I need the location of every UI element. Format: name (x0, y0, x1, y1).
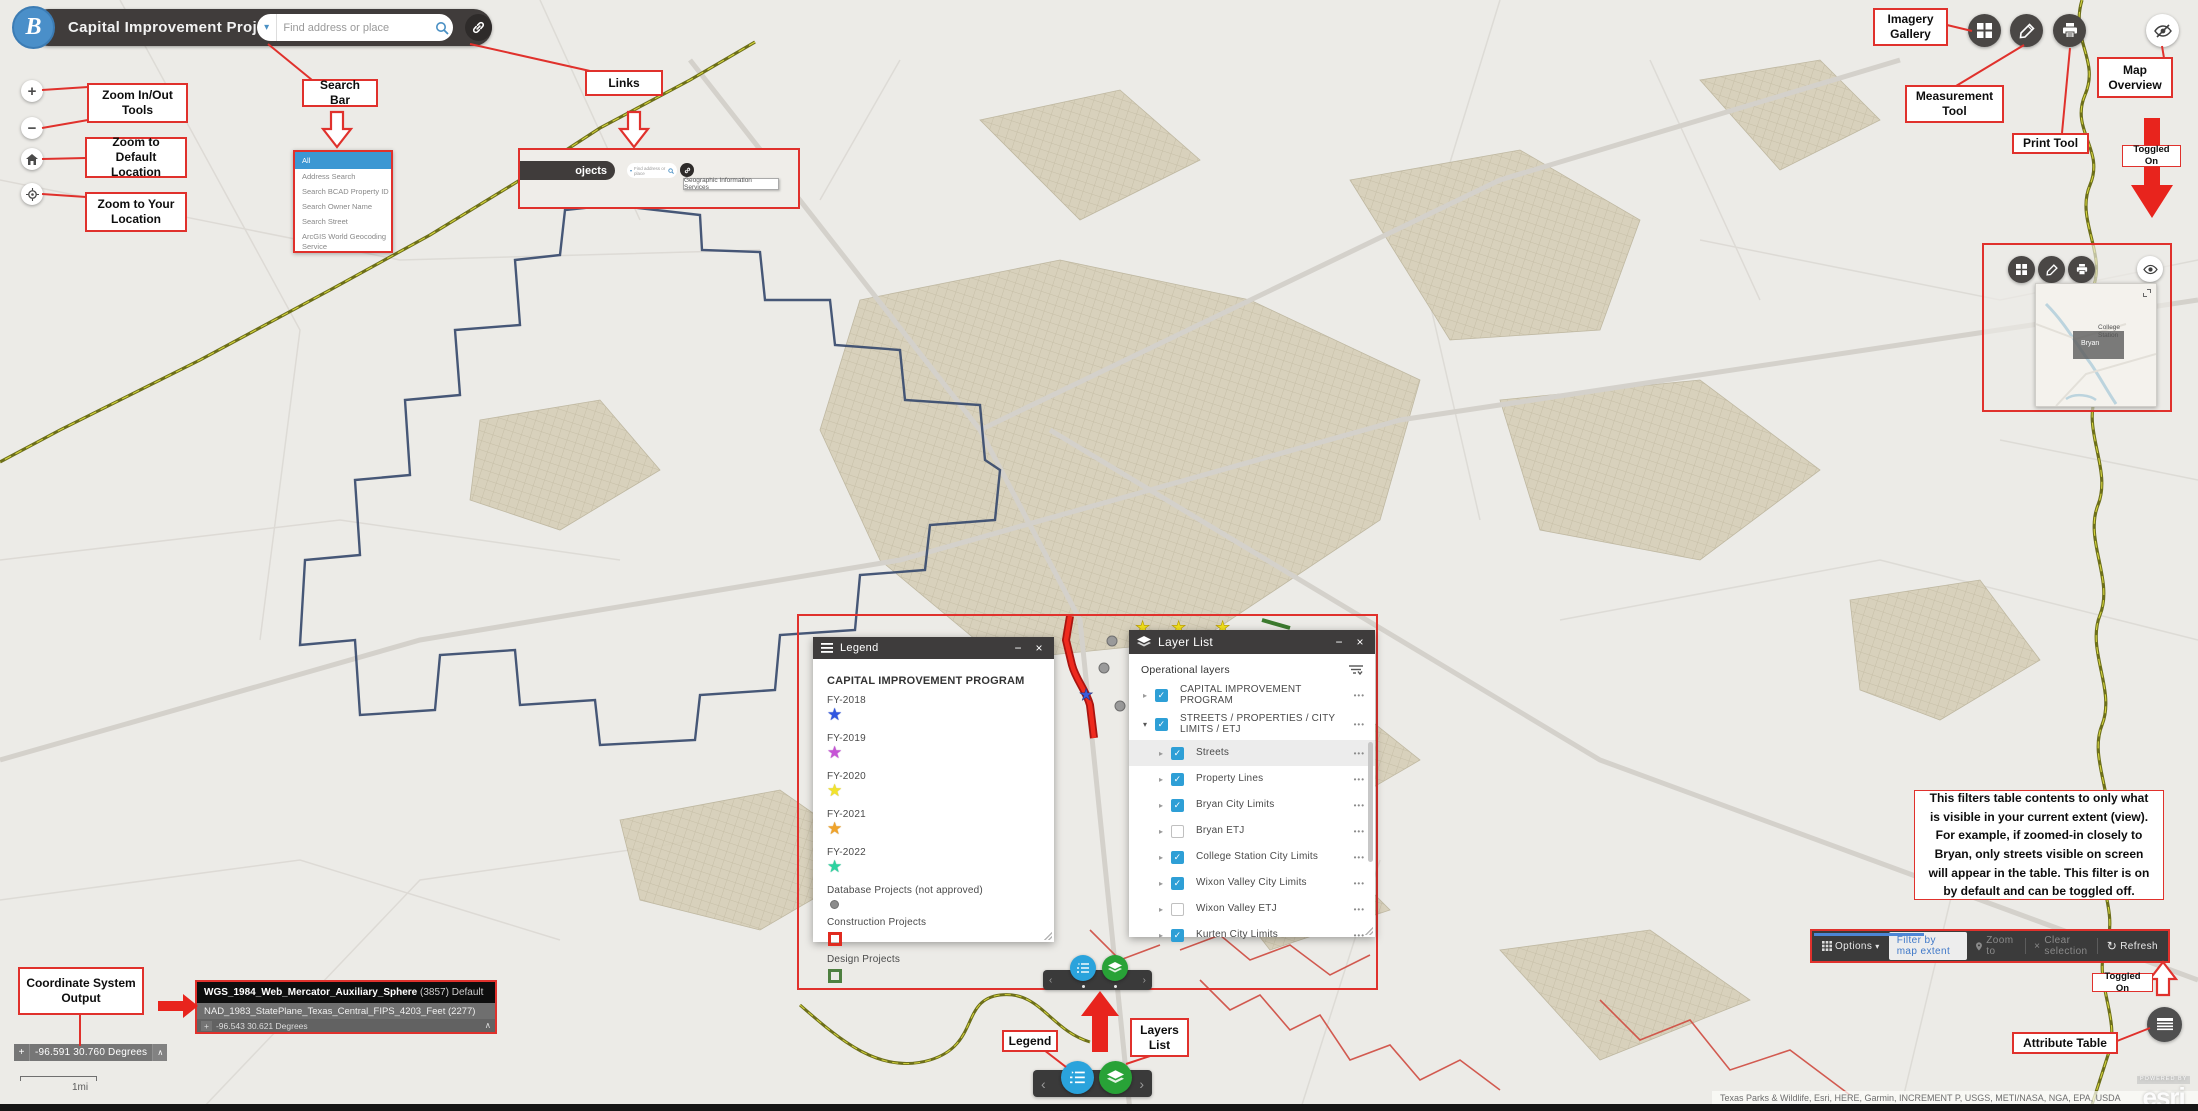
grid-icon (1977, 23, 1992, 38)
layer-list-widget-button[interactable] (1099, 1061, 1132, 1094)
prev-icon[interactable]: ‹ (1041, 1076, 1046, 1092)
crosshair-icon[interactable]: + (14, 1044, 30, 1061)
layer-label: CAPITAL IMPROVEMENT PROGRAM (1180, 684, 1354, 707)
callout-links: Links (585, 70, 663, 96)
overview-eye-button-mini (2137, 256, 2163, 282)
layer-list-resize-handle[interactable] (1365, 927, 1373, 935)
checkbox-unchecked[interactable] (1171, 903, 1184, 916)
dropdown-item-street[interactable]: Search Street (295, 214, 391, 229)
layer-options-icon[interactable] (1349, 665, 1363, 675)
legend-widget-button[interactable] (1061, 1061, 1094, 1094)
legend-close-button[interactable]: × (1032, 641, 1046, 655)
measurement-button-mini (2038, 256, 2065, 283)
scale-bar (20, 1076, 97, 1081)
links-inset: ojects ▾ Find address or place Geographi… (518, 148, 800, 209)
layer-menu-icon[interactable]: ••• (1354, 720, 1365, 729)
layer-row-property-lines[interactable]: ▸ ✓ Property Lines ••• (1129, 766, 1375, 792)
legend-item-label: Construction Projects (827, 917, 1054, 928)
layer-row-wixon-valley-etj[interactable]: ▸ Wixon Valley ETJ ••• (1129, 896, 1375, 922)
overview-label-college-station: College Station (2098, 324, 2128, 340)
expand-icon[interactable]: ▸ (1159, 879, 1171, 888)
callout-coordinate-system: Coordinate System Output (18, 967, 144, 1015)
coordinate-widget: + -96.591 30.760 Degrees ∧ (14, 1044, 167, 1061)
layer-menu-icon[interactable]: ••• (1354, 827, 1365, 836)
layer-label: Streets (1196, 747, 1354, 759)
layer-label: Property Lines (1196, 773, 1354, 785)
operational-layers-header: Operational layers (1129, 654, 1375, 682)
clear-selection-button[interactable]: × Clear selection (2034, 935, 2088, 957)
layer-label: Bryan ETJ (1196, 825, 1354, 837)
layers-icon (1137, 636, 1151, 648)
coordinate-system-row-default[interactable]: WGS_1984_Web_Mercator_Auxiliary_Sphere (… (197, 982, 495, 1003)
callout-search-bar: Search Bar (302, 79, 378, 107)
legend-widget-button-mini (1070, 955, 1096, 981)
checkbox-checked[interactable]: ✓ (1155, 689, 1168, 702)
clear-selection-label: Clear selection (2044, 935, 2088, 957)
app-header: B Capital Improvement Projects ▾ (30, 9, 492, 46)
minus-icon: − (28, 120, 37, 137)
map-attribution: Texas Parks & Wildlife, Esri, HERE, Garm… (1712, 1091, 2198, 1105)
checkbox-checked[interactable]: ✓ (1171, 877, 1184, 890)
caret-down-icon: ▾ (264, 22, 269, 33)
legend-body: CAPITAL IMPROVEMENT PROGRAM FY-2018 ★ FY… (813, 659, 1054, 983)
city-logo: B (12, 6, 55, 49)
callout-zoom-default: Zoom to Default Location (85, 137, 187, 178)
coordinate-system-inset: WGS_1984_Web_Mercator_Auxiliary_Sphere (… (195, 980, 497, 1034)
dropdown-item-owner[interactable]: Search Owner Name (295, 199, 391, 214)
callout-legend: Legend (1002, 1030, 1058, 1052)
overview-expand-icon (2143, 289, 2151, 297)
layer-label: College Station City Limits (1196, 851, 1354, 863)
layer-list-window: Layer List − × Operational layers ▸ ✓ CA… (1129, 630, 1375, 937)
layer-menu-icon[interactable]: ••• (1354, 853, 1365, 862)
overview-label-bryan: Bryan (2081, 340, 2099, 347)
checkbox-checked[interactable]: ✓ (1171, 799, 1184, 812)
links-inset-search: ▾ Find address or place (627, 163, 677, 178)
star-icon: ★ (827, 707, 842, 722)
pencil-icon (2019, 23, 2035, 39)
print-tool-button[interactable] (2053, 14, 2086, 47)
filter-note-box: This filters table contents to only what… (1914, 790, 2164, 900)
zoom-to-button[interactable]: Zoom to (1976, 935, 2015, 957)
filter-by-extent-button[interactable]: Filter by map extent (1889, 932, 1968, 960)
layer-row-streets-group[interactable]: ▾ ✓ STREETS / PROPERTIES / CITY LIMITS /… (1129, 708, 1375, 740)
eye-slash-icon (2154, 23, 2172, 39)
refresh-button[interactable]: ↻ Refresh (2107, 939, 2158, 953)
map-application: ★ ★ ★ ★ B Capital Improvement Projects ▾… (0, 0, 2198, 1111)
refresh-label: Refresh (2120, 941, 2158, 952)
dropdown-item-address[interactable]: Address Search (295, 169, 391, 184)
crosshair-icon: + (201, 1021, 212, 1031)
star-icon: ★ (827, 783, 842, 798)
links-tooltip: Geographic Information Services (683, 178, 779, 190)
legend-item-label: FY-2019 (827, 733, 1054, 744)
dropdown-item-all[interactable]: All (295, 152, 391, 169)
layer-list-scrollbar[interactable] (1368, 742, 1373, 862)
attribute-table-button[interactable] (2147, 1007, 2182, 1042)
legend-titlebar: Legend − × (813, 637, 1054, 659)
widgets-inset: Legend − × CAPITAL IMPROVEMENT PROGRAM F… (797, 614, 1378, 990)
overview-map-panel: Bryan College Station (2035, 283, 2157, 407)
caret-down-icon: ▾ (630, 168, 632, 173)
home-button[interactable] (21, 148, 43, 170)
app-title: Capital Improvement Projects (68, 19, 288, 36)
zoom-in-button[interactable]: + (21, 80, 43, 102)
legend-item-label: FY-2022 (827, 847, 1054, 858)
legend-title: Legend (840, 642, 1004, 654)
expand-icon[interactable]: ▸ (1159, 749, 1171, 758)
layer-row-streets[interactable]: ▸ ✓ Streets ••• (1129, 740, 1375, 766)
next-icon[interactable]: › (1139, 1076, 1144, 1092)
expand-icon[interactable]: ▸ (1159, 905, 1171, 914)
legend-item-label: FY-2020 (827, 771, 1054, 782)
search-icon (668, 168, 674, 174)
callout-map-overview: Map Overview (2097, 57, 2173, 98)
layer-label: Bryan City Limits (1196, 799, 1354, 811)
layer-row-bryan-etj[interactable]: ▸ Bryan ETJ ••• (1129, 818, 1375, 844)
dropdown-item-world-geocoding[interactable]: ArcGIS World Geocoding Service (295, 229, 391, 255)
grid-icon (2016, 264, 2027, 275)
clear-icon: × (2034, 941, 2040, 952)
imagery-gallery-button-mini (2008, 256, 2035, 283)
layer-list-title: Layer List (1158, 635, 1325, 649)
checkbox-checked[interactable]: ✓ (1171, 851, 1184, 864)
coordinate-inset-value: -96.543 30.621 Degrees (216, 1021, 481, 1031)
layer-list-titlebar: Layer List − × (1129, 630, 1375, 654)
widget-carousel-mini: ‹ › (1043, 970, 1152, 990)
pencil-icon (2046, 264, 2058, 276)
zoom-to-label: Zoom to (1986, 935, 2015, 957)
coordinate-expand-button[interactable]: ∧ (152, 1044, 167, 1061)
search-bar: ▾ (257, 14, 453, 41)
options-menu[interactable]: Options ▾ (1822, 941, 1880, 952)
loading-progress-bar (1814, 933, 1924, 936)
layer-row-wixon-valley[interactable]: ▸ ✓ Wixon Valley City Limits ••• (1129, 870, 1375, 896)
callout-imagery-gallery: Imagery Gallery (1873, 8, 1948, 46)
options-grid-icon (1822, 941, 1832, 951)
printer-icon (2076, 264, 2088, 275)
search-source-dropdown[interactable]: ▾ (257, 14, 277, 41)
pin-icon (1976, 941, 1982, 952)
layer-menu-icon[interactable]: ••• (1354, 879, 1365, 888)
link-icon (684, 167, 691, 174)
layer-row-college-station[interactable]: ▸ ✓ College Station City Limits ••• (1129, 844, 1375, 870)
star-icon: ★ (827, 859, 842, 874)
legend-heading: CAPITAL IMPROVEMENT PROGRAM (827, 675, 1054, 687)
callout-toggled-on-top: Toggled On (2122, 145, 2181, 167)
zoom-out-button[interactable]: − (21, 117, 43, 139)
layer-list-widget-button-mini (1102, 955, 1128, 981)
layer-menu-icon[interactable]: ••• (1354, 801, 1365, 810)
options-label: Options (1835, 941, 1872, 952)
callout-zoom-your-location: Zoom to Your Location (85, 192, 187, 232)
crs-code: (3857) (420, 987, 449, 998)
search-input[interactable] (277, 22, 431, 34)
coordinate-inset-value-row: + -96.543 30.621 Degrees ∧ (197, 1019, 495, 1032)
carousel-dot (1114, 985, 1117, 988)
layer-list-close-button[interactable]: × (1353, 635, 1367, 649)
layer-label: STREETS / PROPERTIES / CITY LIMITS / ETJ (1180, 713, 1354, 736)
search-icon (435, 21, 449, 35)
links-inset-placeholder: Find address or place (634, 166, 666, 176)
crs-default-tag: Default (452, 987, 484, 998)
collapse-icon[interactable]: ▾ (1143, 720, 1155, 729)
next-icon[interactable]: › (1143, 975, 1146, 986)
layer-list-minimize-button[interactable]: − (1332, 635, 1346, 649)
search-dropdown-inset: All Address Search Search BCAD Property … (293, 150, 393, 253)
links-inset-link-button (680, 163, 694, 177)
layer-label: Kurten City Limits (1196, 929, 1354, 941)
layer-row-bryan-city-limits[interactable]: ▸ ✓ Bryan City Limits ••• (1129, 792, 1375, 818)
layer-row-kurten[interactable]: ▸ ✓ Kurten City Limits ••• (1129, 922, 1375, 948)
callout-zoom-in-out: Zoom In/Out Tools (87, 83, 188, 123)
dropdown-item-bcad[interactable]: Search BCAD Property ID (295, 184, 391, 199)
links-inset-title: ojects (575, 165, 607, 177)
carousel-dot (1082, 985, 1085, 988)
expand-icon[interactable]: ▸ (1159, 775, 1171, 784)
checkbox-checked[interactable]: ✓ (1155, 718, 1168, 731)
callout-measurement-tool: Measurement Tool (1905, 85, 2004, 123)
legend-resize-handle[interactable] (1044, 932, 1052, 940)
imagery-gallery-button[interactable] (1968, 14, 2001, 47)
layer-row-cip[interactable]: ▸ ✓ CAPITAL IMPROVEMENT PROGRAM ••• (1129, 682, 1375, 708)
callout-print-tool: Print Tool (2012, 133, 2089, 154)
link-icon (471, 20, 486, 35)
printer-icon (2062, 23, 2078, 38)
divider (2097, 938, 2098, 954)
table-icon (2157, 1018, 2173, 1032)
callout-attribute-table: Attribute Table (2012, 1032, 2118, 1054)
refresh-icon: ↻ (2107, 939, 2117, 953)
star-icon: ★ (827, 745, 842, 760)
legend-list-icon (1077, 963, 1090, 974)
bottom-edge-strip (0, 1104, 2198, 1111)
layer-menu-icon[interactable]: ••• (1354, 691, 1365, 700)
callout-toggled-on-bottom: Toggled On (2092, 973, 2153, 992)
layers-icon (1107, 1070, 1124, 1085)
links-inset-header: ojects (518, 161, 615, 180)
layer-menu-icon[interactable]: ••• (1354, 775, 1365, 784)
expand-icon[interactable]: ▸ (1159, 827, 1171, 836)
locate-button[interactable] (21, 183, 43, 205)
legend-item-label: FY-2018 (827, 695, 1054, 706)
eye-icon (2143, 263, 2158, 276)
measurement-tool-button[interactable] (2010, 14, 2043, 47)
overview-inset: Bryan College Station (1982, 243, 2172, 412)
caret-up-icon[interactable]: ∧ (485, 1020, 491, 1031)
map-overview-toggle-button[interactable] (2146, 14, 2179, 47)
legend-minimize-button[interactable]: − (1011, 641, 1025, 655)
star-icon: ★ (827, 821, 842, 836)
menu-icon (821, 643, 833, 653)
checkbox-checked[interactable]: ✓ (1171, 773, 1184, 786)
checkbox-checked[interactable]: ✓ (1171, 929, 1184, 942)
circle-symbol-icon (830, 900, 839, 909)
callout-layers-list: Layers List (1130, 1018, 1189, 1057)
square-symbol-icon (828, 932, 842, 946)
crs-name: WGS_1984_Web_Mercator_Auxiliary_Sphere (204, 987, 417, 998)
layers-icon (1108, 962, 1122, 974)
layer-menu-icon[interactable]: ••• (1354, 905, 1365, 914)
coordinate-system-row-stateplane[interactable]: NAD_1983_StatePlane_Texas_Central_FIPS_4… (197, 1003, 495, 1019)
legend-window: Legend − × CAPITAL IMPROVEMENT PROGRAM F… (813, 637, 1054, 942)
caret-down-icon: ▾ (1875, 942, 1879, 951)
scale-label: 1mi (72, 1082, 88, 1093)
print-button-mini (2068, 256, 2095, 283)
checkbox-checked[interactable]: ✓ (1171, 747, 1184, 760)
divider (2025, 938, 2026, 954)
legend-item-label: Design Projects (827, 954, 1054, 965)
expand-icon[interactable]: ▸ (1143, 691, 1155, 700)
legend-item-label: Database Projects (not approved) (827, 885, 1054, 896)
plus-icon: + (28, 83, 37, 100)
square-symbol-icon (828, 969, 842, 983)
legend-list-icon (1070, 1071, 1086, 1085)
expand-icon[interactable]: ▸ (1159, 801, 1171, 810)
layer-menu-icon[interactable]: ••• (1354, 749, 1365, 758)
home-icon (26, 154, 38, 165)
attribute-table-bar-inset: Options ▾ Filter by map extent Zoom to ×… (1810, 929, 2170, 963)
expand-icon[interactable]: ▸ (1159, 931, 1171, 940)
layer-label: Wixon Valley ETJ (1196, 903, 1354, 915)
layer-label: Wixon Valley City Limits (1196, 877, 1354, 889)
legend-item-label: FY-2021 (827, 809, 1054, 820)
expand-icon[interactable]: ▸ (1159, 853, 1171, 862)
locate-icon (26, 188, 39, 201)
checkbox-unchecked[interactable] (1171, 825, 1184, 838)
links-button[interactable] (465, 14, 492, 41)
coordinate-value: -96.591 30.760 Degrees (30, 1044, 152, 1061)
layer-menu-icon[interactable]: ••• (1354, 931, 1365, 940)
search-button[interactable] (431, 21, 453, 35)
operational-layers-label: Operational layers (1141, 664, 1230, 676)
